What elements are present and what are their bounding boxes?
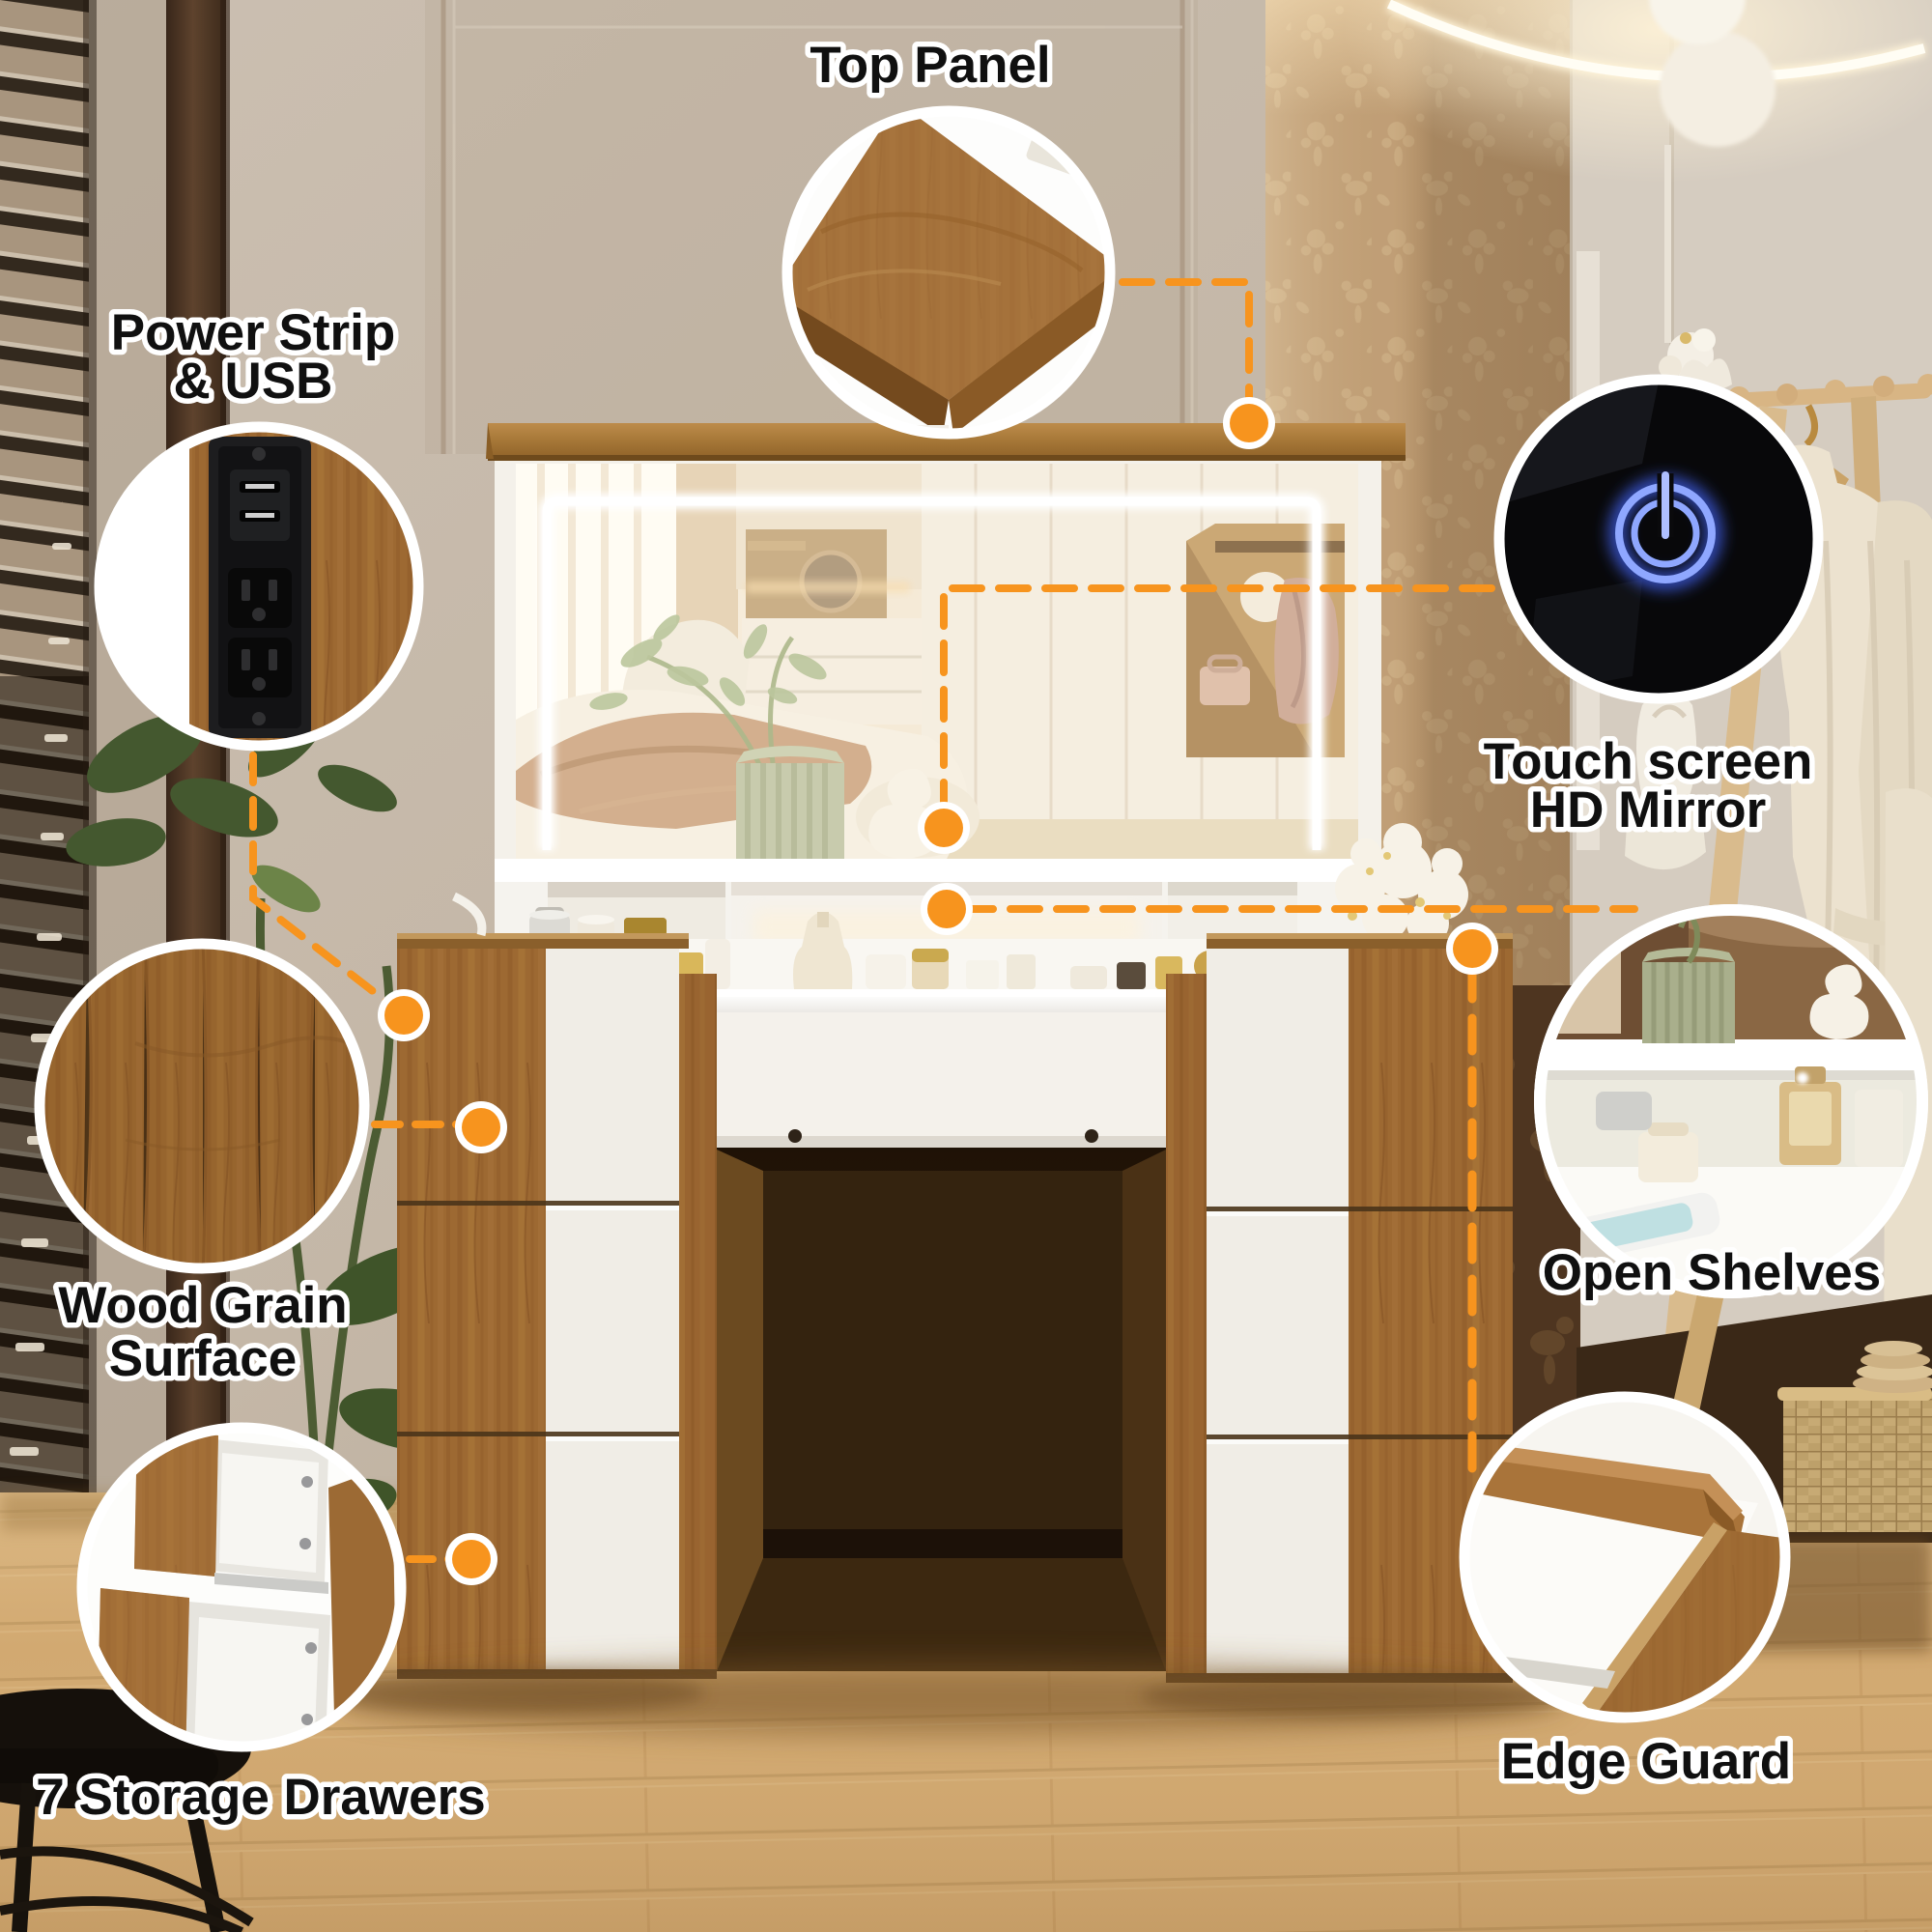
svg-text:& USB: & USB bbox=[174, 353, 333, 410]
svg-text:Open Shelves: Open Shelves bbox=[1543, 1244, 1882, 1301]
svg-text:Top Panel: Top Panel bbox=[810, 37, 1050, 94]
svg-text:Edge Guard: Edge Guard bbox=[1501, 1733, 1791, 1790]
svg-text:7 Storage Drawers: 7 Storage Drawers bbox=[36, 1769, 485, 1826]
svg-text:Wood Grain: Wood Grain bbox=[58, 1277, 347, 1334]
svg-text:HD Mirror: HD Mirror bbox=[1530, 781, 1766, 838]
svg-text:Surface: Surface bbox=[109, 1330, 297, 1387]
